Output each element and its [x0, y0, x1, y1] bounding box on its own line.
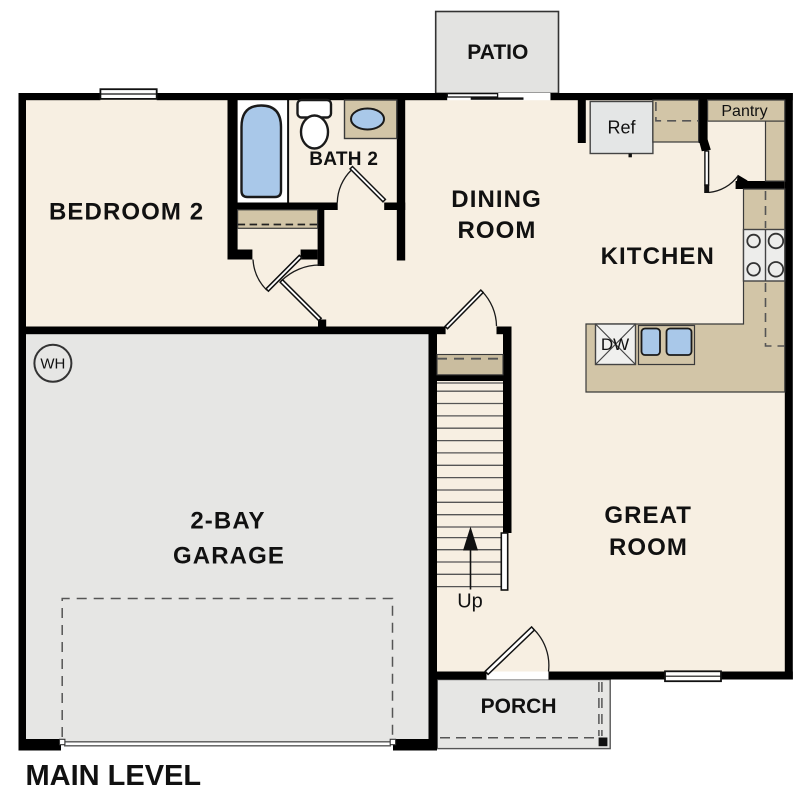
- svg-text:PATIO: PATIO: [467, 41, 528, 64]
- svg-text:MAIN LEVEL: MAIN LEVEL: [26, 760, 202, 792]
- svg-text:ROOM: ROOM: [609, 534, 688, 561]
- svg-text:KITCHEN: KITCHEN: [601, 243, 715, 270]
- svg-text:GREAT: GREAT: [604, 502, 692, 529]
- svg-text:Pantry: Pantry: [721, 103, 767, 120]
- svg-text:WH: WH: [40, 356, 65, 373]
- svg-text:GARAGE: GARAGE: [173, 543, 285, 570]
- svg-text:DINING: DINING: [451, 186, 542, 213]
- svg-text:2-BAY: 2-BAY: [190, 508, 265, 535]
- svg-text:DW: DW: [601, 335, 629, 354]
- svg-text:Up: Up: [457, 591, 483, 613]
- svg-text:Ref: Ref: [607, 118, 636, 138]
- svg-text:BEDROOM 2: BEDROOM 2: [49, 199, 204, 226]
- svg-text:ROOM: ROOM: [457, 217, 536, 244]
- svg-text:BATH 2: BATH 2: [309, 149, 378, 170]
- svg-text:PORCH: PORCH: [481, 695, 557, 718]
